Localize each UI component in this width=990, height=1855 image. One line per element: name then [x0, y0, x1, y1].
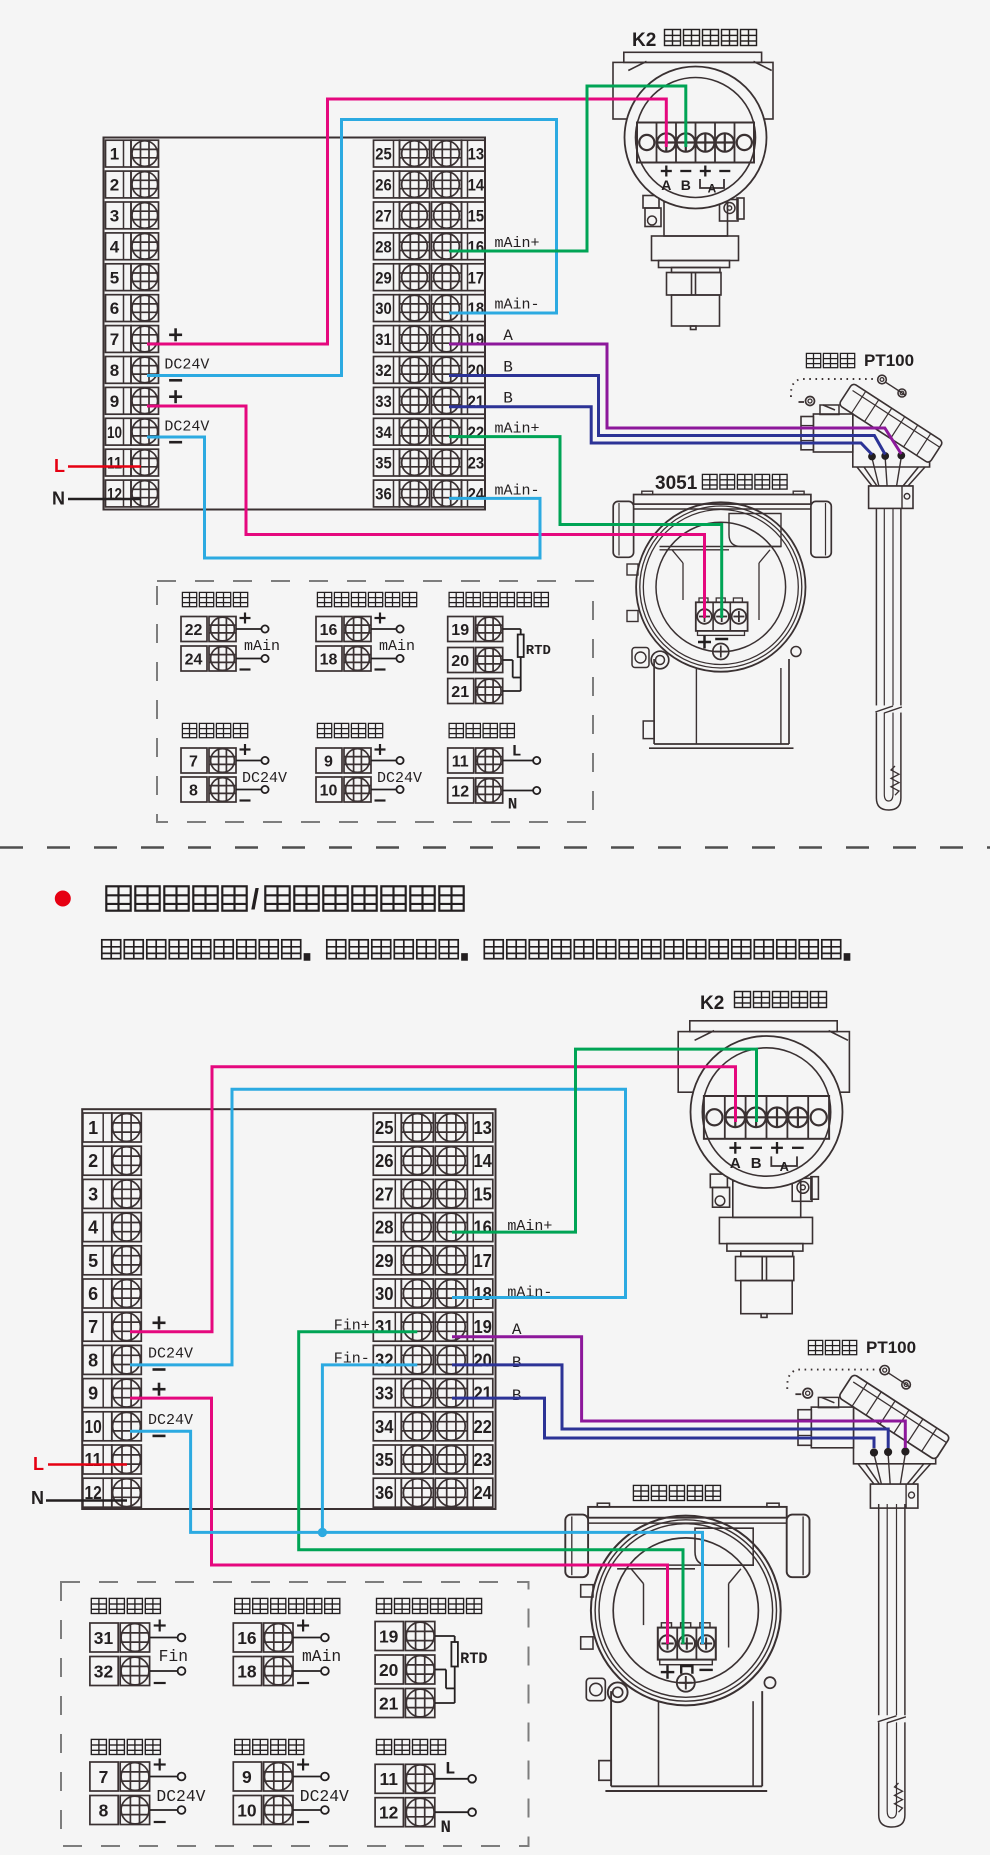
svg-text:mAin: mAin: [302, 1647, 341, 1666]
svg-text:16: 16: [237, 1628, 257, 1648]
svg-text:18: 18: [473, 1284, 492, 1304]
svg-text:DC24V: DC24V: [164, 357, 209, 374]
svg-text:10: 10: [320, 782, 338, 799]
svg-text:13: 13: [468, 145, 485, 164]
svg-text:N: N: [31, 1488, 44, 1508]
svg-text:26: 26: [375, 176, 392, 195]
svg-text:N: N: [508, 796, 518, 814]
svg-text:18: 18: [237, 1661, 257, 1681]
svg-text:21: 21: [379, 1693, 399, 1713]
svg-text:15: 15: [468, 207, 485, 226]
svg-text:5: 5: [88, 1251, 98, 1271]
svg-text:5: 5: [110, 268, 119, 287]
svg-text:17: 17: [473, 1251, 492, 1271]
svg-text:30: 30: [375, 1284, 394, 1304]
svg-text:A: A: [730, 1155, 741, 1172]
svg-text:DC24V: DC24V: [156, 1787, 205, 1806]
svg-text:11: 11: [107, 454, 122, 473]
svg-text:7: 7: [110, 330, 119, 349]
svg-text:B: B: [681, 177, 691, 193]
svg-text:18: 18: [468, 299, 485, 318]
svg-text:24: 24: [185, 651, 203, 668]
svg-text:3051: 3051: [655, 473, 698, 494]
svg-text:17: 17: [468, 268, 485, 287]
svg-text:23: 23: [468, 454, 485, 473]
svg-text:22: 22: [185, 622, 203, 639]
svg-text:Fin: Fin: [159, 1647, 188, 1666]
svg-text:DC24V: DC24V: [148, 1346, 193, 1363]
svg-text:30: 30: [375, 299, 392, 318]
svg-text:DC24V: DC24V: [242, 770, 287, 787]
svg-text:31: 31: [375, 1317, 394, 1337]
svg-text:B: B: [512, 1354, 522, 1372]
svg-text:4: 4: [110, 237, 120, 256]
svg-text:33: 33: [375, 1384, 394, 1404]
svg-text:25: 25: [375, 1118, 394, 1138]
svg-text:L: L: [512, 743, 522, 761]
svg-text:12: 12: [107, 485, 122, 504]
svg-text:14: 14: [473, 1151, 492, 1171]
svg-text:DC24V: DC24V: [377, 770, 422, 787]
svg-text:8: 8: [99, 1800, 109, 1820]
svg-text:PT100: PT100: [864, 351, 914, 370]
svg-text:21: 21: [451, 684, 469, 701]
svg-text:12: 12: [379, 1803, 398, 1823]
svg-text:16: 16: [468, 237, 485, 256]
svg-text:22: 22: [468, 423, 485, 442]
svg-text:29: 29: [375, 268, 392, 287]
svg-text:8: 8: [189, 782, 198, 799]
svg-text:26: 26: [375, 1151, 394, 1171]
svg-text:33: 33: [375, 392, 392, 411]
svg-text:8: 8: [88, 1350, 98, 1370]
svg-text:K2: K2: [632, 30, 656, 51]
svg-text:K2: K2: [700, 993, 724, 1014]
svg-text:2: 2: [110, 176, 119, 195]
svg-text:1: 1: [88, 1118, 98, 1138]
svg-text:RTD: RTD: [460, 1650, 487, 1668]
svg-text:21: 21: [473, 1384, 492, 1404]
svg-text:32: 32: [375, 1350, 394, 1370]
svg-text:9: 9: [88, 1384, 98, 1404]
svg-text:9: 9: [324, 753, 333, 770]
svg-text:A: A: [503, 327, 513, 345]
svg-text:14: 14: [468, 176, 485, 195]
svg-text:A: A: [708, 182, 717, 196]
svg-text:L: L: [33, 1454, 44, 1474]
svg-text:mAin+: mAin+: [495, 235, 540, 252]
svg-text:8: 8: [110, 361, 119, 380]
svg-text:10: 10: [84, 1417, 101, 1437]
svg-text:20: 20: [379, 1660, 398, 1680]
svg-text:28: 28: [375, 1218, 394, 1238]
svg-text:28: 28: [375, 237, 392, 256]
svg-text:4: 4: [88, 1218, 98, 1238]
svg-text:23: 23: [473, 1450, 492, 1470]
svg-text:3: 3: [88, 1184, 98, 1204]
svg-text:1: 1: [110, 145, 119, 164]
svg-text:15: 15: [473, 1184, 492, 1204]
svg-text:34: 34: [375, 1417, 394, 1437]
svg-text:7: 7: [88, 1317, 98, 1337]
svg-text:7: 7: [189, 753, 198, 770]
svg-text:18: 18: [320, 651, 338, 668]
svg-text:13: 13: [473, 1118, 492, 1138]
svg-text:36: 36: [375, 1483, 394, 1503]
svg-text:35: 35: [375, 1450, 394, 1470]
svg-text:29: 29: [375, 1251, 394, 1271]
svg-text:2: 2: [88, 1151, 98, 1171]
svg-text:mAin: mAin: [244, 638, 280, 655]
svg-text:A: A: [780, 1159, 789, 1174]
svg-text:9: 9: [242, 1767, 252, 1787]
svg-text:11: 11: [84, 1450, 101, 1470]
svg-text:20: 20: [473, 1350, 492, 1370]
svg-text:16: 16: [473, 1218, 492, 1238]
svg-text:A: A: [661, 177, 671, 193]
svg-text:B: B: [503, 359, 513, 377]
svg-text:9: 9: [110, 392, 119, 411]
svg-text:/: /: [251, 884, 259, 916]
svg-text:10: 10: [237, 1800, 256, 1820]
svg-text:16: 16: [320, 622, 338, 639]
svg-text:32: 32: [94, 1661, 113, 1681]
svg-text:B: B: [503, 390, 513, 408]
svg-text:31: 31: [94, 1628, 114, 1648]
svg-text:12: 12: [451, 783, 469, 800]
svg-text:mAin: mAin: [379, 638, 415, 655]
svg-text:N: N: [441, 1818, 451, 1838]
svg-text:DC24V: DC24V: [164, 418, 209, 435]
svg-text:32: 32: [375, 361, 392, 380]
svg-text:36: 36: [375, 485, 392, 504]
svg-text:19: 19: [451, 622, 469, 639]
svg-text:22: 22: [473, 1417, 492, 1437]
svg-text:N: N: [52, 489, 65, 509]
svg-text:mAin-: mAin-: [495, 482, 540, 499]
svg-text:19: 19: [379, 1626, 399, 1646]
svg-text:mAin-: mAin-: [495, 297, 540, 314]
svg-text:B: B: [512, 1387, 522, 1405]
svg-text:11: 11: [379, 1769, 398, 1789]
svg-text:27: 27: [375, 1184, 394, 1204]
svg-text:11: 11: [452, 753, 469, 770]
svg-text:PT100: PT100: [866, 1338, 916, 1357]
svg-text:34: 34: [375, 423, 392, 442]
svg-text:3: 3: [110, 207, 119, 226]
svg-text:20: 20: [468, 361, 485, 380]
svg-text:6: 6: [88, 1284, 98, 1304]
svg-text:L: L: [445, 1759, 455, 1779]
svg-text:RTD: RTD: [526, 643, 551, 659]
svg-text:B: B: [751, 1155, 762, 1172]
svg-text:19: 19: [468, 330, 485, 349]
svg-text:19: 19: [473, 1317, 492, 1337]
svg-text:24: 24: [473, 1483, 492, 1503]
svg-text:10: 10: [107, 423, 122, 442]
svg-text:35: 35: [375, 454, 392, 473]
svg-text:25: 25: [375, 145, 392, 164]
svg-text:24: 24: [468, 485, 485, 504]
svg-text:mAin+: mAin+: [495, 421, 540, 438]
svg-text:DC24V: DC24V: [148, 1412, 193, 1429]
svg-text:7: 7: [99, 1767, 109, 1787]
svg-text:6: 6: [110, 299, 119, 318]
svg-text:L: L: [54, 456, 65, 476]
svg-text:27: 27: [375, 207, 392, 226]
svg-text:31: 31: [375, 330, 392, 349]
svg-text:DC24V: DC24V: [300, 1787, 349, 1806]
svg-text:20: 20: [451, 653, 469, 670]
